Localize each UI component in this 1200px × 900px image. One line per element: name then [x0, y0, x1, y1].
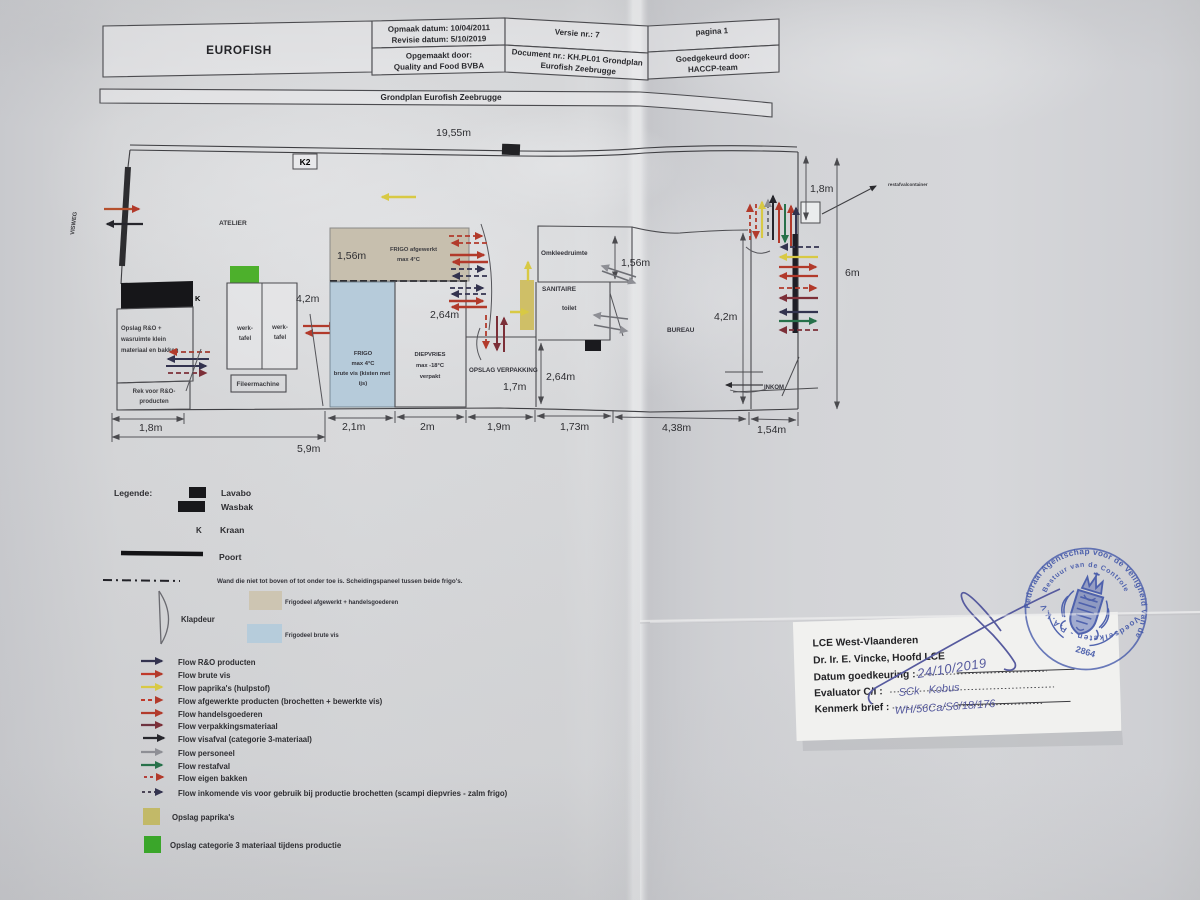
- svg-text:Fileermachine: Fileermachine: [237, 381, 280, 388]
- svg-text:ATELIER: ATELIER: [219, 220, 247, 227]
- svg-text:DIEPVRIES: DIEPVRIES: [415, 352, 446, 358]
- svg-text:tafel: tafel: [239, 336, 252, 342]
- svg-text:2m: 2m: [420, 421, 435, 433]
- svg-text:6m: 6m: [845, 267, 860, 279]
- svg-text:Flow R&O producten: Flow R&O producten: [178, 658, 256, 667]
- svg-text:Frigodeel brute vis: Frigodeel brute vis: [285, 633, 339, 639]
- svg-text:restafvalcontainer: restafvalcontainer: [888, 182, 928, 187]
- svg-text:Legende:: Legende:: [114, 488, 152, 498]
- svg-text:FRIGO afgewerkt: FRIGO afgewerkt: [390, 247, 437, 253]
- svg-text:K2: K2: [300, 157, 311, 167]
- svg-text:Evaluator C/I :: Evaluator C/I :: [814, 686, 883, 699]
- svg-text:Revisie datum: 5/10/2019: Revisie datum: 5/10/2019: [392, 34, 487, 45]
- svg-text:Flow handelsgoederen: Flow handelsgoederen: [178, 710, 263, 719]
- svg-text:Lavabo: Lavabo: [221, 488, 251, 498]
- svg-text:SANITAIRE: SANITAIRE: [542, 286, 577, 293]
- svg-text:Opslag paprika's: Opslag paprika's: [172, 813, 235, 822]
- svg-text:werk-: werk-: [236, 326, 253, 332]
- svg-text:FRIGO: FRIGO: [354, 351, 373, 357]
- svg-text:1,7m: 1,7m: [503, 381, 527, 393]
- svg-text:verpakt: verpakt: [420, 374, 441, 380]
- svg-text:materiaal en bakken: materiaal en bakken: [121, 348, 179, 354]
- svg-text:producten: producten: [139, 399, 169, 405]
- svg-text:max 4°C: max 4°C: [397, 257, 421, 263]
- svg-text:Frigodeel afgewerkt + handelsg: Frigodeel afgewerkt + handelsgoederen: [285, 600, 399, 606]
- svg-text:4,2m: 4,2m: [296, 293, 320, 305]
- svg-text:Flow inkomende vis voor gebrui: Flow inkomende vis voor gebruik bij prod…: [178, 789, 508, 798]
- svg-text:1,56m: 1,56m: [621, 257, 650, 269]
- svg-text:max 4°C: max 4°C: [352, 361, 376, 367]
- svg-text:1,8m: 1,8m: [139, 422, 163, 434]
- svg-text:Flow afgewerkte producten (bro: Flow afgewerkte producten (brochetten + …: [178, 697, 383, 706]
- svg-text:4,2m: 4,2m: [714, 311, 738, 323]
- svg-text:K: K: [196, 526, 202, 535]
- svg-text:Wasbak: Wasbak: [221, 502, 253, 512]
- svg-text:max -18°C: max -18°C: [416, 363, 445, 369]
- svg-text:wasruimte klein: wasruimte klein: [120, 337, 166, 343]
- svg-text:Kraan: Kraan: [220, 525, 244, 535]
- svg-text:Opmaak datum: 10/04/2011: Opmaak datum: 10/04/2011: [388, 23, 491, 34]
- svg-text:2,1m: 2,1m: [342, 421, 366, 433]
- svg-text:Opslag categorie 3 materiaal t: Opslag categorie 3 materiaal tijdens pro…: [170, 841, 342, 850]
- svg-text:Flow eigen bakken: Flow eigen bakken: [178, 774, 248, 783]
- svg-text:Flow verpakkingsmateriaal: Flow verpakkingsmateriaal: [178, 722, 278, 731]
- svg-text:1,8m: 1,8m: [810, 183, 834, 195]
- svg-text:19,55m: 19,55m: [436, 127, 471, 139]
- svg-text:EUROFISH: EUROFISH: [206, 43, 272, 57]
- svg-text:1,56m: 1,56m: [337, 250, 366, 262]
- svg-text:werk-: werk-: [271, 325, 288, 331]
- svg-text:Flow restafval: Flow restafval: [178, 762, 230, 771]
- svg-text:2,64m: 2,64m: [546, 371, 575, 383]
- svg-text:Flow visafval (categorie 3-mat: Flow visafval (categorie 3-materiaal): [178, 735, 312, 744]
- svg-text:ijs): ijs): [359, 381, 367, 387]
- svg-text:Flow paprika's (hulpstof): Flow paprika's (hulpstof): [178, 684, 270, 693]
- svg-text:OPSLAG VERPAKKING: OPSLAG VERPAKKING: [469, 367, 538, 374]
- svg-text:Wand die niet tot boven of tot: Wand die niet tot boven of tot onder toe…: [217, 578, 463, 585]
- svg-text:INKOM: INKOM: [764, 385, 784, 391]
- svg-text:Flow personeel: Flow personeel: [178, 749, 235, 758]
- svg-text:1,73m: 1,73m: [560, 421, 589, 433]
- svg-text:Grondplan Eurofish Zeebrugge: Grondplan Eurofish Zeebrugge: [381, 93, 502, 102]
- svg-text:brute vis (kisten met: brute vis (kisten met: [334, 371, 390, 377]
- svg-text:toilet: toilet: [562, 306, 576, 312]
- svg-text:Opslag R&O +: Opslag R&O +: [121, 326, 162, 332]
- svg-text:K: K: [195, 294, 201, 303]
- svg-text:BUREAU: BUREAU: [667, 327, 695, 334]
- svg-text:4,38m: 4,38m: [662, 422, 691, 434]
- svg-text:pagina 1: pagina 1: [695, 26, 728, 37]
- svg-text:1,9m: 1,9m: [487, 421, 511, 433]
- svg-text:2,64m: 2,64m: [430, 309, 459, 321]
- svg-text:Rek voor R&O-: Rek voor R&O-: [133, 389, 176, 395]
- svg-text:5,9m: 5,9m: [297, 443, 321, 455]
- svg-text:1,54m: 1,54m: [757, 424, 786, 436]
- svg-text:Kenmerk brief :: Kenmerk brief :: [815, 702, 890, 715]
- svg-text:Omkleedruimte: Omkleedruimte: [541, 250, 588, 257]
- svg-text:Flow brute vis: Flow brute vis: [178, 671, 231, 680]
- svg-text:Quality and Food BVBA: Quality and Food BVBA: [394, 61, 485, 72]
- svg-text:Klapdeur: Klapdeur: [181, 615, 215, 624]
- svg-text:Poort: Poort: [219, 552, 242, 562]
- svg-text:tafel: tafel: [274, 335, 287, 341]
- svg-text:Opgemaakt door:: Opgemaakt door:: [406, 50, 472, 60]
